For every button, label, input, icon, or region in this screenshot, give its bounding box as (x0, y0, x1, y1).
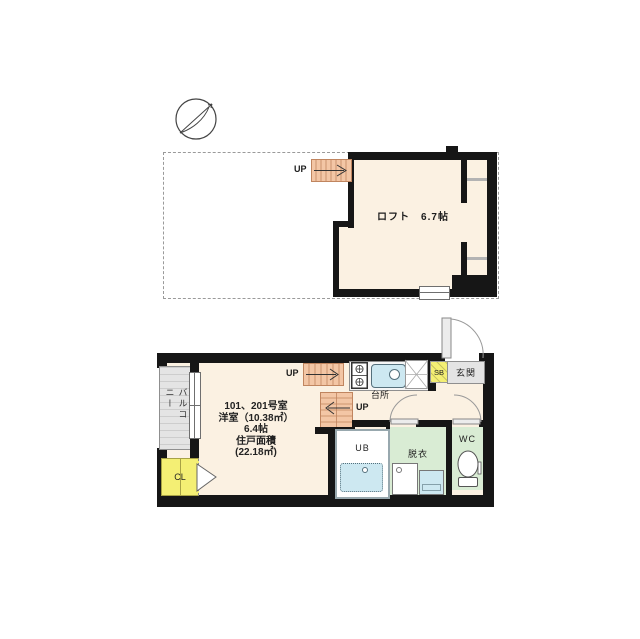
unit-area-label: 住戸面積 (200, 436, 312, 448)
refrigerator-space-icon (405, 360, 428, 389)
toilet-room-label: WC (452, 434, 483, 444)
north-arrow-icon (171, 95, 221, 145)
wall (328, 427, 335, 503)
laundry-sink-icon (419, 470, 444, 495)
stove-icon (351, 362, 368, 389)
staircase-upper (303, 363, 344, 386)
closet-door-icon (196, 463, 218, 493)
room-type-label: 洋室（10.38㎡） (200, 413, 312, 425)
room-number-label: 101、201号室 (200, 401, 312, 413)
shelf-line (467, 178, 487, 181)
up-label-1: UP (286, 368, 299, 379)
entrance-label: 玄関 (456, 366, 476, 379)
bathtub-icon (340, 463, 383, 492)
up-label-2: UP (356, 402, 369, 413)
unit-bath-room: UB (335, 429, 390, 499)
up-label-loft: UP (294, 164, 307, 175)
unit-bath-label: UB (337, 443, 388, 453)
wall (352, 420, 390, 427)
closet-label: CL (162, 472, 198, 482)
wall (190, 437, 199, 458)
unit-area-value: (22.18㎡) (200, 447, 312, 459)
washer-icon (392, 463, 418, 495)
wall (351, 152, 497, 160)
wall (333, 221, 339, 297)
window (419, 286, 450, 300)
wall (461, 242, 467, 278)
loft-room-floor-extension (337, 222, 357, 291)
room-info: 101、201号室 洋室（10.38㎡） 6.4帖 住戸面積 (22.18㎡) (200, 401, 312, 459)
staircase-lower (320, 392, 353, 428)
wall (446, 146, 458, 153)
dressing-room: 脱衣 (390, 427, 446, 495)
loft-room-label: ロフト 6.7帖 (353, 212, 473, 223)
dressing-room-label: 脱衣 (390, 447, 446, 460)
wall (452, 275, 497, 297)
floor-plan-canvas: UP ロフト 6.7帖 バルコニー CL UP (0, 0, 640, 639)
toilet-icon (456, 450, 482, 488)
room-size-label: 6.4帖 (200, 424, 312, 436)
dressing-room-door-icon (388, 393, 420, 426)
shoe-box: SB (430, 361, 448, 383)
toilet-door-icon (451, 393, 483, 426)
balcony-label: バルコニー (164, 388, 190, 429)
faucet-icon (389, 369, 400, 380)
closet: CL (161, 458, 199, 496)
wall (157, 495, 494, 507)
loft-staircase (311, 159, 352, 182)
shelf-line (467, 257, 487, 260)
shoe-box-label: SB (434, 368, 444, 377)
entrance-floor: 玄関 (447, 361, 485, 384)
entrance-door-icon (441, 317, 485, 362)
